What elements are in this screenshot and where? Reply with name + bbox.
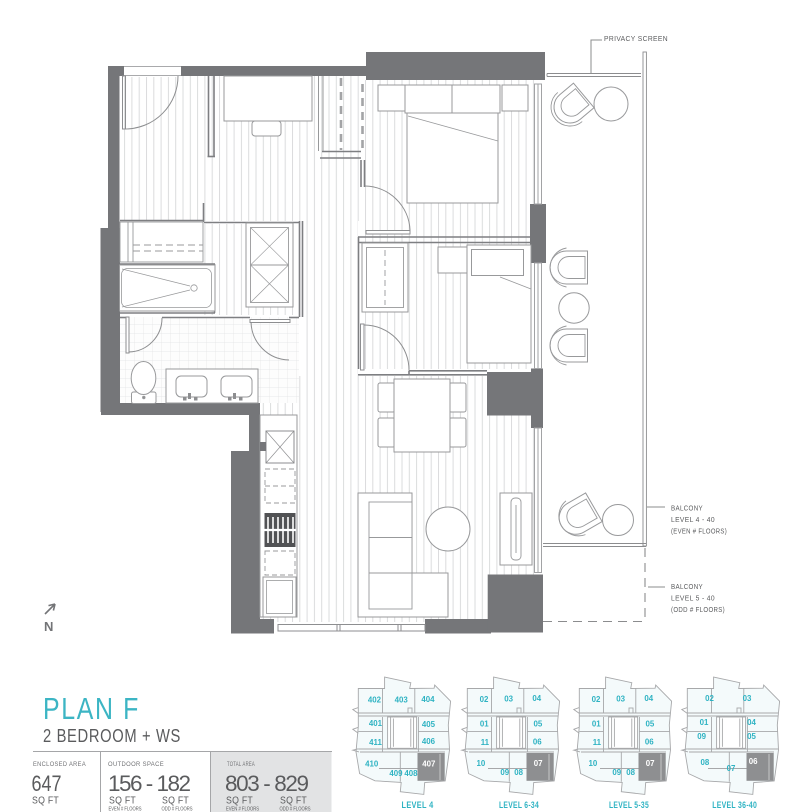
svg-text:BALCONY: BALCONY bbox=[671, 504, 703, 513]
svg-text:04: 04 bbox=[532, 694, 541, 703]
svg-text:403: 403 bbox=[395, 696, 409, 705]
svg-text:SQ FT: SQ FT bbox=[32, 795, 59, 807]
svg-text:SQ FT: SQ FT bbox=[226, 795, 253, 807]
svg-text:407: 407 bbox=[422, 760, 436, 769]
svg-text:TOTAL AREA: TOTAL AREA bbox=[227, 761, 255, 768]
svg-text:SQ FT: SQ FT bbox=[280, 795, 307, 807]
svg-text:(EVEN # FLOORS): (EVEN # FLOORS) bbox=[671, 527, 727, 536]
svg-text:402: 402 bbox=[368, 696, 382, 705]
svg-text:05: 05 bbox=[534, 720, 543, 729]
svg-text:02: 02 bbox=[592, 695, 601, 704]
svg-text:06: 06 bbox=[749, 757, 758, 766]
svg-text:408: 408 bbox=[404, 769, 418, 778]
svg-text:2 BEDROOM + WS: 2 BEDROOM + WS bbox=[43, 726, 181, 746]
svg-text:11: 11 bbox=[593, 738, 602, 747]
svg-text:156 - 182: 156 - 182 bbox=[108, 771, 191, 796]
svg-text:803 - 829: 803 - 829 bbox=[225, 771, 309, 796]
svg-text:EVEN # FLOORS: EVEN # FLOORS bbox=[226, 807, 259, 812]
svg-text:409: 409 bbox=[389, 769, 403, 778]
svg-text:LEVEL 4 - 40: LEVEL 4 - 40 bbox=[671, 515, 715, 524]
svg-text:404: 404 bbox=[421, 695, 435, 704]
svg-text:01: 01 bbox=[480, 719, 489, 728]
svg-text:BALCONY: BALCONY bbox=[671, 582, 703, 591]
svg-text:08: 08 bbox=[514, 768, 523, 777]
svg-text:LEVEL 36-40: LEVEL 36-40 bbox=[712, 800, 757, 811]
svg-text:ENCLOSED AREA: ENCLOSED AREA bbox=[33, 761, 86, 768]
svg-text:10: 10 bbox=[477, 759, 486, 768]
svg-text:LEVEL 5-35: LEVEL 5-35 bbox=[609, 800, 649, 811]
svg-text:06: 06 bbox=[645, 738, 654, 747]
svg-text:02: 02 bbox=[705, 694, 714, 703]
svg-text:03: 03 bbox=[616, 695, 625, 704]
svg-text:04: 04 bbox=[747, 718, 756, 727]
svg-text:SQ FT: SQ FT bbox=[109, 795, 136, 807]
svg-text:06: 06 bbox=[533, 738, 542, 747]
svg-text:07: 07 bbox=[534, 759, 543, 768]
svg-text:02: 02 bbox=[480, 695, 489, 704]
svg-text:410: 410 bbox=[365, 760, 379, 769]
svg-text:647: 647 bbox=[32, 771, 62, 796]
svg-text:05: 05 bbox=[646, 720, 655, 729]
svg-text:01: 01 bbox=[700, 718, 709, 727]
svg-text:03: 03 bbox=[743, 694, 752, 703]
svg-text:11: 11 bbox=[481, 738, 490, 747]
svg-text:09: 09 bbox=[612, 768, 621, 777]
svg-text:07: 07 bbox=[646, 759, 655, 768]
svg-text:09: 09 bbox=[500, 768, 509, 777]
svg-text:LEVEL 4: LEVEL 4 bbox=[402, 800, 434, 811]
svg-text:(ODD # FLOORS): (ODD # FLOORS) bbox=[671, 605, 725, 614]
svg-text:LEVEL 6-34: LEVEL 6-34 bbox=[499, 800, 539, 811]
svg-text:OUTDOOR SPACE: OUTDOOR SPACE bbox=[108, 761, 164, 768]
svg-text:405: 405 bbox=[422, 720, 436, 729]
svg-text:03: 03 bbox=[504, 695, 513, 704]
svg-text:PLAN F: PLAN F bbox=[43, 692, 140, 726]
svg-text:01: 01 bbox=[592, 719, 601, 728]
svg-text:EVEN # FLOORS: EVEN # FLOORS bbox=[109, 807, 142, 812]
svg-text:406: 406 bbox=[422, 737, 436, 746]
svg-text:07: 07 bbox=[727, 764, 736, 773]
svg-text:N: N bbox=[44, 619, 53, 634]
svg-text:411: 411 bbox=[369, 738, 382, 747]
svg-text:05: 05 bbox=[747, 732, 756, 741]
svg-text:08: 08 bbox=[701, 758, 710, 767]
svg-text:PRIVACY SCREEN: PRIVACY SCREEN bbox=[604, 34, 668, 43]
svg-text:09: 09 bbox=[697, 732, 706, 741]
svg-text:04: 04 bbox=[644, 694, 653, 703]
svg-text:LEVEL 5 - 40: LEVEL 5 - 40 bbox=[671, 594, 715, 603]
svg-text:SQ FT: SQ FT bbox=[162, 795, 189, 807]
svg-text:401: 401 bbox=[369, 719, 383, 728]
svg-text:ODD # FLOORS: ODD # FLOORS bbox=[280, 807, 311, 812]
svg-text:08: 08 bbox=[626, 768, 635, 777]
svg-text:ODD # FLOORS: ODD # FLOORS bbox=[162, 807, 193, 812]
svg-text:10: 10 bbox=[589, 759, 598, 768]
